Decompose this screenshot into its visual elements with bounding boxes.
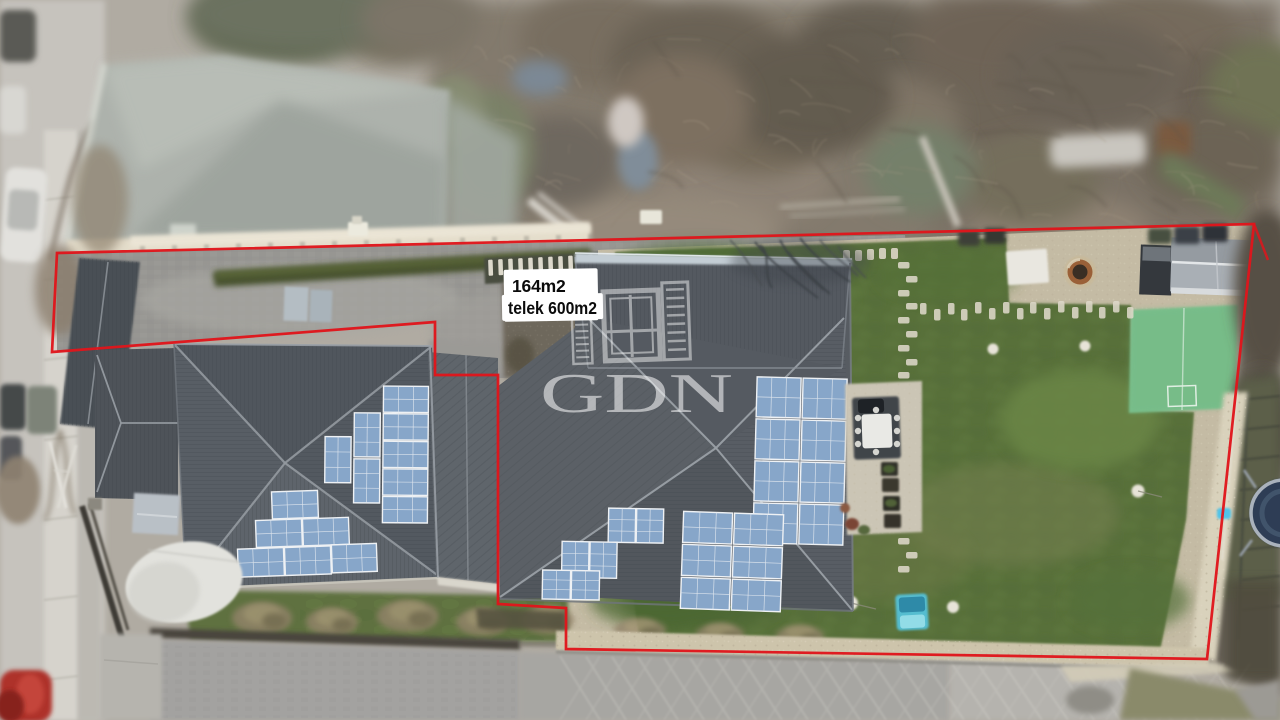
svg-text:telek 600m2: telek 600m2	[508, 298, 597, 318]
svg-text:164m2: 164m2	[512, 276, 566, 296]
svg-text:GDN: GDN	[540, 363, 733, 425]
